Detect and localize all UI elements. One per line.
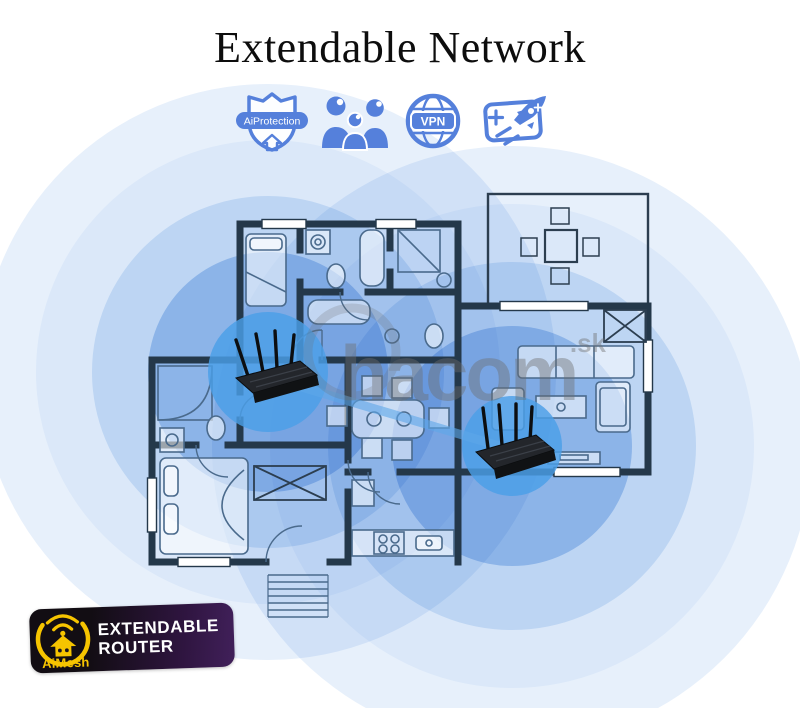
watermark-suffix: .sk [570, 328, 607, 358]
network-coverage-diagram: AiProtection [0, 0, 800, 708]
badge-title: EXTENDABLE ROUTER [95, 616, 219, 658]
aiprotection-label: AiProtection [244, 116, 301, 128]
watermark-text: hacom [340, 329, 576, 417]
game-boost-rocket-icon [485, 96, 546, 144]
vpn-label: VPN [421, 115, 446, 129]
marketing-image: Extendable Network AiProtection [0, 0, 800, 708]
badge-title-line2: ROUTER [98, 635, 220, 658]
aimesh-brand-label: AiMesh [37, 654, 95, 671]
aimesh-extendable-router-badge: AiMesh EXTENDABLE ROUTER [29, 602, 235, 673]
entrance-stairs [268, 575, 328, 617]
aimesh-icon-wrap: AiMesh [29, 607, 97, 673]
